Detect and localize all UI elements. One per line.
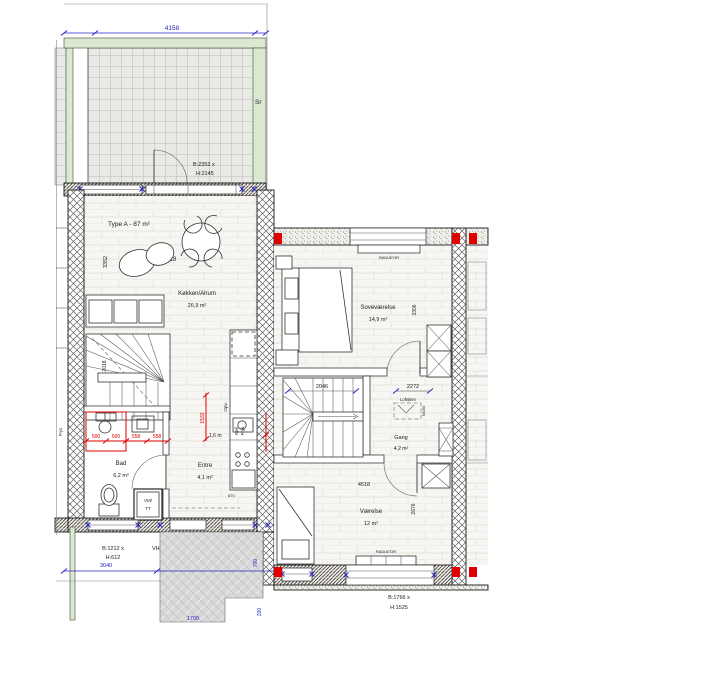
attic-hatch-size: 50x90 (422, 406, 426, 416)
room-area-kitchen: 26,9 m² (188, 303, 207, 309)
dishwasher-label: Opv. (223, 402, 228, 411)
terrace-wall-right (253, 48, 266, 190)
unit-type-label: Type A - 87 m² (108, 221, 151, 228)
terrace-door-size-h: H:2145 (196, 171, 214, 177)
party-wall-a-b (257, 190, 274, 532)
neighbor-floor-sliver (466, 245, 488, 565)
column-marker (469, 233, 477, 244)
window-size-h: H:612 (106, 555, 121, 561)
red-dim-558a: 558 (132, 434, 141, 440)
dim-label-4158: 4158 (165, 25, 180, 32)
wardrobe (422, 464, 450, 488)
toilet-icon (99, 485, 119, 517)
single-bed (277, 487, 314, 564)
small-window (282, 568, 312, 581)
washing-machine: VM/ TT (134, 489, 162, 520)
party-wall-b-east (452, 228, 466, 585)
bedroom-wall-south-left (274, 368, 387, 376)
vaerelse-window (346, 565, 434, 585)
dim-label-2046: 2046 (316, 384, 328, 390)
column-marker (274, 233, 282, 244)
red-dim-558b: 558 (153, 434, 162, 440)
dim-label-2272: 2272 (407, 384, 419, 390)
radiator-icon (439, 423, 453, 456)
red-dim-500b: 500 (112, 434, 121, 440)
dim-label-200: 200 (257, 608, 263, 617)
red-dim-1533: 1533 (200, 412, 206, 423)
column-marker (274, 567, 282, 577)
room-area-vaerelse: 12 m² (364, 521, 378, 527)
stair-rail (98, 373, 146, 382)
bath-wall-east-upper (163, 412, 169, 455)
bath-wall-east-lower (163, 489, 169, 518)
stair-hall-wall (363, 376, 370, 455)
party-wall-a-b-lower (263, 532, 274, 585)
room-label-entre: Entre (198, 463, 213, 469)
room-label-vaerelse: Værelse (360, 509, 383, 515)
fridge-label-2: Frys (240, 426, 245, 435)
terrace-door-opening (146, 185, 242, 194)
nightstand (276, 350, 298, 365)
window-size-b1766: B:1766 x (388, 595, 410, 601)
floorplan-page: Sr B:2352 x H:2145 4158 (0, 0, 710, 700)
red-dim-500a: 500 (92, 434, 101, 440)
wash-label-1: VM/ (144, 498, 153, 503)
window-size-h1525: H:1525 (390, 605, 408, 611)
column-marker (452, 567, 460, 577)
room-label-bedroom: Soveværelse (360, 305, 396, 311)
room-label-kitchen: Køkken/Alrum (178, 291, 216, 297)
dim-label-3306: 3306 (412, 304, 418, 315)
column-marker (469, 567, 477, 577)
dim-label-3352: 3352 (103, 256, 109, 268)
room-label-hall: Gang (394, 435, 407, 441)
dim-label-3040: 3040 (100, 563, 112, 569)
dim-label-4518-b: 4518 (358, 482, 370, 488)
radiator-label-bottom: RADIATOR (376, 549, 396, 554)
dim-label-870: 870 (228, 493, 235, 498)
terrace-wall-left (66, 48, 73, 185)
double-bed (282, 268, 352, 352)
vh-label: VH (152, 546, 160, 552)
stairs-unit-b: 2046 (283, 378, 363, 457)
terrace-side-label: Sr (255, 99, 262, 106)
room-area-hall: 4,2 m² (394, 446, 409, 452)
terrace-wall-top (64, 38, 266, 48)
garden-strip (70, 527, 75, 620)
loftslem-label: Loftslem (400, 397, 416, 402)
bath-wall-north (84, 406, 170, 412)
window-sill (358, 245, 420, 253)
radiator-label-top: RADIATOR (379, 255, 399, 260)
dim-label-2018: 2018 (102, 360, 108, 371)
room-area-bedroom: 14,9 m² (369, 317, 388, 323)
bedroom-window (350, 228, 426, 245)
neighbor-facade-sliver (55, 518, 68, 532)
wash-label-2: TT (145, 506, 151, 511)
front-door-opening (170, 520, 206, 530)
dim-label-1700: 1700 (187, 616, 199, 622)
window-size-b: B:1212 x (102, 546, 124, 552)
terrace-door-size-b: B:2352 x (193, 162, 215, 168)
floorplan-drawing: Sr B:2352 x H:2145 4158 (0, 0, 710, 700)
wardrobe (427, 325, 451, 377)
neighbor-appliance-label: Frys (58, 428, 63, 436)
south-insulation-strip (274, 585, 488, 590)
room-area-entre: 4,1 m² (197, 475, 213, 481)
sofa (86, 295, 164, 327)
fridge-label-1: Køl/ (234, 426, 239, 435)
party-wall-west (68, 190, 84, 520)
dim-label-2676: 2676 (411, 503, 417, 514)
bath-width-label: 1,6 m (209, 433, 222, 439)
terrace-tiles (88, 48, 255, 183)
column-marker (452, 233, 460, 244)
room-area-bad: 6,2 m² (113, 473, 129, 479)
nightstand (276, 256, 292, 269)
dim-label-700: 700 (253, 559, 259, 568)
room-label-bad: Bad (116, 461, 127, 467)
